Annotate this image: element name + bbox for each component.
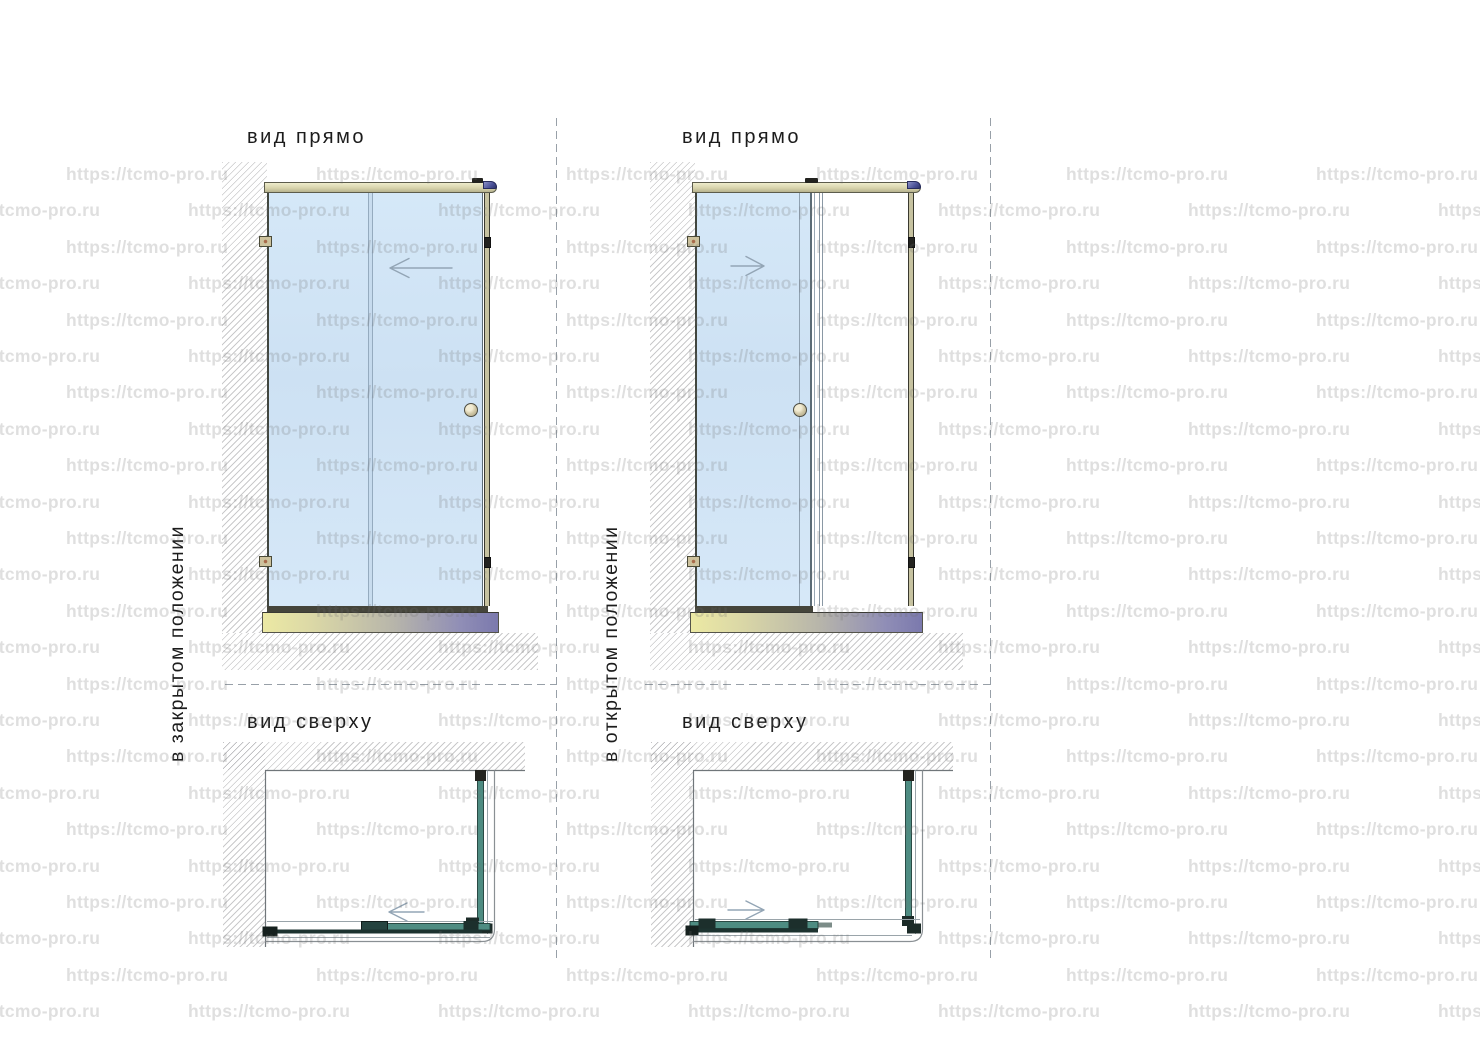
watermark-text: https://tcmo-pro.ru — [1188, 200, 1350, 221]
watermark-text: https://tcmo-pro.ru — [938, 928, 1100, 949]
watermark-text: https://tcmo-pro.ru — [66, 237, 228, 258]
door-carrier-block-open-b — [789, 919, 808, 930]
watermark-text: https://tcmo-pro.ru — [0, 710, 100, 731]
watermark-text: https://tcmo-pro.ru — [438, 1001, 600, 1022]
watermark-text: https://tcmo-pro.ru — [316, 892, 478, 913]
watermark-text: https://tcmo-pro.ru — [1316, 601, 1478, 622]
watermark-text: https://tcmo-pro.ru — [0, 346, 100, 367]
corner-connector-plan-open-b — [907, 924, 921, 934]
wall-bracket-open-bottom — [687, 556, 700, 567]
watermark-text: https://tcmo-pro.ru — [566, 965, 728, 986]
watermark-text: https://tcmo-pro.ru — [1438, 200, 1480, 221]
top-rail-closed — [264, 182, 497, 193]
watermark-text: https://tcmo-pro.ru — [1188, 346, 1350, 367]
watermark-text: https://tcmo-pro.ru — [1316, 965, 1478, 986]
watermark-text: https://tcmo-pro.ru — [1188, 419, 1350, 440]
watermark-text: https://tcmo-pro.ru — [1438, 1001, 1480, 1022]
watermark-text: https://tcmo-pro.ru — [566, 674, 728, 695]
watermark-text: https://tcmo-pro.ru — [1066, 528, 1228, 549]
wall-hatch-open-plan-left — [651, 742, 693, 947]
base-tray-closed — [262, 612, 499, 633]
enclosure-outline-closed-plan — [266, 771, 495, 942]
watermark-text: https://tcmo-pro.ru — [0, 856, 100, 877]
watermark-text: https://tcmo-pro.ru — [66, 455, 228, 476]
corner-connector-plan-closed-a — [466, 918, 479, 928]
base-tray-open — [690, 612, 923, 633]
watermark-text: https://tcmo-pro.ru — [1316, 746, 1478, 767]
watermark-text: https://tcmo-pro.ru — [0, 1001, 100, 1022]
watermark-text: https://tcmo-pro.ru — [1438, 856, 1480, 877]
drawing-canvas: в закрытом положении в открытом положени… — [0, 0, 1480, 1047]
post-bracket-open-top — [908, 237, 915, 248]
watermark-text: https://tcmo-pro.ru — [66, 601, 228, 622]
watermark-text: https://tcmo-pro.ru — [1316, 382, 1478, 403]
corner-bracket-plan-closed — [475, 770, 486, 781]
watermark-text: https://tcmo-pro.ru — [1438, 637, 1480, 658]
top-rail-open — [692, 182, 921, 193]
watermark-text: https://tcmo-pro.ru — [438, 928, 600, 949]
watermark-text: https://tcmo-pro.ru — [1316, 674, 1478, 695]
watermark-text: https://tcmo-pro.ru — [816, 382, 978, 403]
watermark-text: https://tcmo-pro.ru — [438, 856, 600, 877]
watermark-text: https://tcmo-pro.ru — [438, 783, 600, 804]
watermark-text: https://tcmo-pro.ru — [0, 564, 100, 585]
watermark-text: https://tcmo-pro.ru — [66, 310, 228, 331]
watermark-text: https://tcmo-pro.ru — [816, 237, 978, 258]
watermark-text: https://tcmo-pro.ru — [0, 273, 100, 294]
watermark-text: https://tcmo-pro.ru — [438, 710, 600, 731]
watermark-text: https://tcmo-pro.ru — [1438, 492, 1480, 513]
watermark-text: https://tcmo-pro.ru — [1188, 710, 1350, 731]
wall-bracket-closed-bottom — [259, 556, 272, 567]
rail-end-cap-closed — [483, 181, 497, 189]
enclosure-outline-open-plan — [694, 771, 923, 942]
watermark-text: https://tcmo-pro.ru — [816, 310, 978, 331]
fixed-panel-plan-open — [688, 929, 818, 933]
watermark-text: https://tcmo-pro.ru — [1188, 637, 1350, 658]
watermark-text: https://tcmo-pro.ru — [66, 528, 228, 549]
post-bracket-closed-top — [484, 237, 491, 248]
watermark-text: https://tcmo-pro.ru — [1438, 783, 1480, 804]
watermark-text: https://tcmo-pro.ru — [316, 674, 478, 695]
watermark-text: https://tcmo-pro.ru — [1066, 965, 1228, 986]
watermark-text: https://tcmo-pro.ru — [1316, 237, 1478, 258]
watermark-text: https://tcmo-pro.ru — [0, 783, 100, 804]
door-edge-line — [810, 193, 812, 606]
corner-bracket-plan-open — [903, 770, 914, 781]
side-glass-panel-plan-closed — [478, 772, 484, 924]
watermark-text: https://tcmo-pro.ru — [66, 164, 228, 185]
watermark-text: https://tcmo-pro.ru — [1066, 237, 1228, 258]
closed-position-label: в закрытом положении — [166, 525, 189, 762]
watermark-text: https://tcmo-pro.ru — [938, 1001, 1100, 1022]
watermark-text: https://tcmo-pro.ru — [1316, 455, 1478, 476]
watermark-text: https://tcmo-pro.ru — [1066, 674, 1228, 695]
watermark-text: https://tcmo-pro.ru — [816, 892, 978, 913]
watermark-text: https://tcmo-pro.ru — [816, 674, 978, 695]
post-bracket-open-bottom — [908, 557, 915, 568]
wall-hatch-closed-plan-left — [223, 742, 265, 947]
watermark-text: https://tcmo-pro.ru — [1316, 310, 1478, 331]
door-stile-line-a — [799, 193, 800, 606]
side-glass-panel-plan-open — [906, 772, 912, 924]
watermark-text: https://tcmo-pro.ru — [938, 783, 1100, 804]
watermark-text: https://tcmo-pro.ru — [1438, 273, 1480, 294]
front-view-open-title: вид прямо — [682, 126, 801, 149]
fixed-panel-plan-closed — [265, 930, 482, 934]
watermark-text: https://tcmo-pro.ru — [66, 819, 228, 840]
watermark-text: https://tcmo-pro.ru — [1066, 164, 1228, 185]
door-handle-knob-open — [793, 403, 807, 417]
door-handle-knob-closed — [464, 403, 478, 417]
watermark-text: https://tcmo-pro.ru — [938, 564, 1100, 585]
corner-connector-plan-closed-b — [479, 924, 493, 934]
top-view-closed-drawing — [263, 770, 526, 947]
wall-bracket-closed-top — [259, 236, 272, 247]
wall-hatch-closed-plan-top — [223, 742, 525, 770]
glass-panels-closed — [267, 193, 483, 606]
top-view-open-drawing — [686, 770, 954, 947]
watermark-text: https://tcmo-pro.ru — [188, 928, 350, 949]
sliding-door-plan-closed — [363, 924, 490, 931]
watermark-text: https://tcmo-pro.ru — [816, 819, 978, 840]
watermark-text: https://tcmo-pro.ru — [66, 892, 228, 913]
rail-end-cap-open — [907, 181, 921, 189]
watermark-text: https://tcmo-pro.ru — [688, 783, 850, 804]
watermark-text: https://tcmo-pro.ru — [566, 819, 728, 840]
watermark-text: https://tcmo-pro.ru — [1066, 310, 1228, 331]
watermark-text: https://tcmo-pro.ru — [938, 492, 1100, 513]
watermark-text: https://tcmo-pro.ru — [1066, 455, 1228, 476]
watermark-text: https://tcmo-pro.ru — [1066, 601, 1228, 622]
watermark-text: https://tcmo-pro.ru — [816, 528, 978, 549]
door-stile-line-b — [814, 193, 815, 606]
top-view-open-title: вид сверху — [682, 711, 808, 734]
right-frame-post-open — [908, 193, 914, 606]
watermark-text: https://tcmo-pro.ru — [566, 892, 728, 913]
watermark-text: https://tcmo-pro.ru — [1188, 783, 1350, 804]
door-roller-closed — [472, 178, 483, 183]
right-frame-post-closed — [484, 193, 490, 606]
watermark-text: https://tcmo-pro.ru — [66, 382, 228, 403]
watermark-text: https://tcmo-pro.ru — [938, 200, 1100, 221]
watermark-text: https://tcmo-pro.ru — [0, 419, 100, 440]
watermark-text: https://tcmo-pro.ru — [1316, 528, 1478, 549]
door-guide-tail-open — [806, 923, 832, 928]
watermark-text: https://tcmo-pro.ru — [816, 455, 978, 476]
watermark-text: https://tcmo-pro.ru — [816, 965, 978, 986]
watermark-text: https://tcmo-pro.ru — [938, 346, 1100, 367]
watermark-text: https://tcmo-pro.ru — [1188, 492, 1350, 513]
floor-hatch-open-front — [650, 633, 963, 670]
watermark-text: https://tcmo-pro.ru — [1438, 419, 1480, 440]
front-view-closed-title: вид прямо — [247, 126, 366, 149]
watermark-text: https://tcmo-pro.ru — [1188, 273, 1350, 294]
watermark-text: https://tcmo-pro.ru — [1066, 819, 1228, 840]
watermark-text: https://tcmo-pro.ru — [1438, 346, 1480, 367]
door-roller-open — [805, 178, 818, 183]
watermark-text: https://tcmo-pro.ru — [1316, 892, 1478, 913]
watermark-text: https://tcmo-pro.ru — [1066, 892, 1228, 913]
slide-direction-arrow-plan-closed — [389, 903, 424, 921]
watermark-text: https://tcmo-pro.ru — [316, 819, 478, 840]
open-position-label: в открытом положении — [600, 525, 623, 762]
wall-hatch-open-plan-top — [651, 742, 953, 770]
slide-direction-arrow-plan-open — [728, 901, 764, 919]
door-overlap-divider-closed — [368, 193, 373, 606]
door-end-block-closed — [464, 921, 479, 932]
watermark-text: https://tcmo-pro.ru — [316, 965, 478, 986]
watermark-text: https://tcmo-pro.ru — [1188, 564, 1350, 585]
glass-panels-open — [695, 193, 810, 606]
watermark-text: https://tcmo-pro.ru — [938, 273, 1100, 294]
watermark-text: https://tcmo-pro.ru — [1438, 564, 1480, 585]
floor-hatch-closed-front — [222, 633, 538, 670]
watermark-text: https://tcmo-pro.ru — [688, 856, 850, 877]
watermark-text: https://tcmo-pro.ru — [1066, 382, 1228, 403]
corner-connector-plan-open-a — [902, 916, 914, 926]
door-stile-line-c — [819, 193, 823, 606]
watermark-text: https://tcmo-pro.ru — [1188, 1001, 1350, 1022]
watermark-text: https://tcmo-pro.ru — [188, 783, 350, 804]
watermark-text: https://tcmo-pro.ru — [1188, 856, 1350, 877]
sliding-door-plan-open — [690, 922, 818, 929]
wall-bracket-open-top — [687, 236, 700, 247]
watermark-text: https://tcmo-pro.ru — [0, 492, 100, 513]
watermark-text: https://tcmo-pro.ru — [938, 419, 1100, 440]
watermark-text: https://tcmo-pro.ru — [688, 928, 850, 949]
watermark-text: https://tcmo-pro.ru — [938, 710, 1100, 731]
watermark-text: https://tcmo-pro.ru — [188, 1001, 350, 1022]
door-carrier-block-open-a — [699, 919, 716, 930]
watermark-text: https://tcmo-pro.ru — [188, 856, 350, 877]
door-carrier-block-closed — [362, 922, 388, 932]
watermark-text: https://tcmo-pro.ru — [1316, 819, 1478, 840]
watermark-text: https://tcmo-pro.ru — [66, 746, 228, 767]
watermark-text: https://tcmo-pro.ru — [0, 637, 100, 658]
watermark-text: https://tcmo-pro.ru — [1438, 710, 1480, 731]
post-bracket-closed-bottom — [484, 557, 491, 568]
watermark-text: https://tcmo-pro.ru — [1066, 746, 1228, 767]
watermark-text: https://tcmo-pro.ru — [1316, 164, 1478, 185]
watermark-text: https://tcmo-pro.ru — [1188, 928, 1350, 949]
watermark-text: https://tcmo-pro.ru — [66, 674, 228, 695]
watermark-text: https://tcmo-pro.ru — [0, 200, 100, 221]
watermark-text: https://tcmo-pro.ru — [66, 965, 228, 986]
top-view-closed-title: вид сверху — [247, 711, 373, 734]
watermark-text: https://tcmo-pro.ru — [938, 856, 1100, 877]
watermark-text: https://tcmo-pro.ru — [688, 1001, 850, 1022]
watermark-text: https://tcmo-pro.ru — [1438, 928, 1480, 949]
watermark-text: https://tcmo-pro.ru — [0, 928, 100, 949]
